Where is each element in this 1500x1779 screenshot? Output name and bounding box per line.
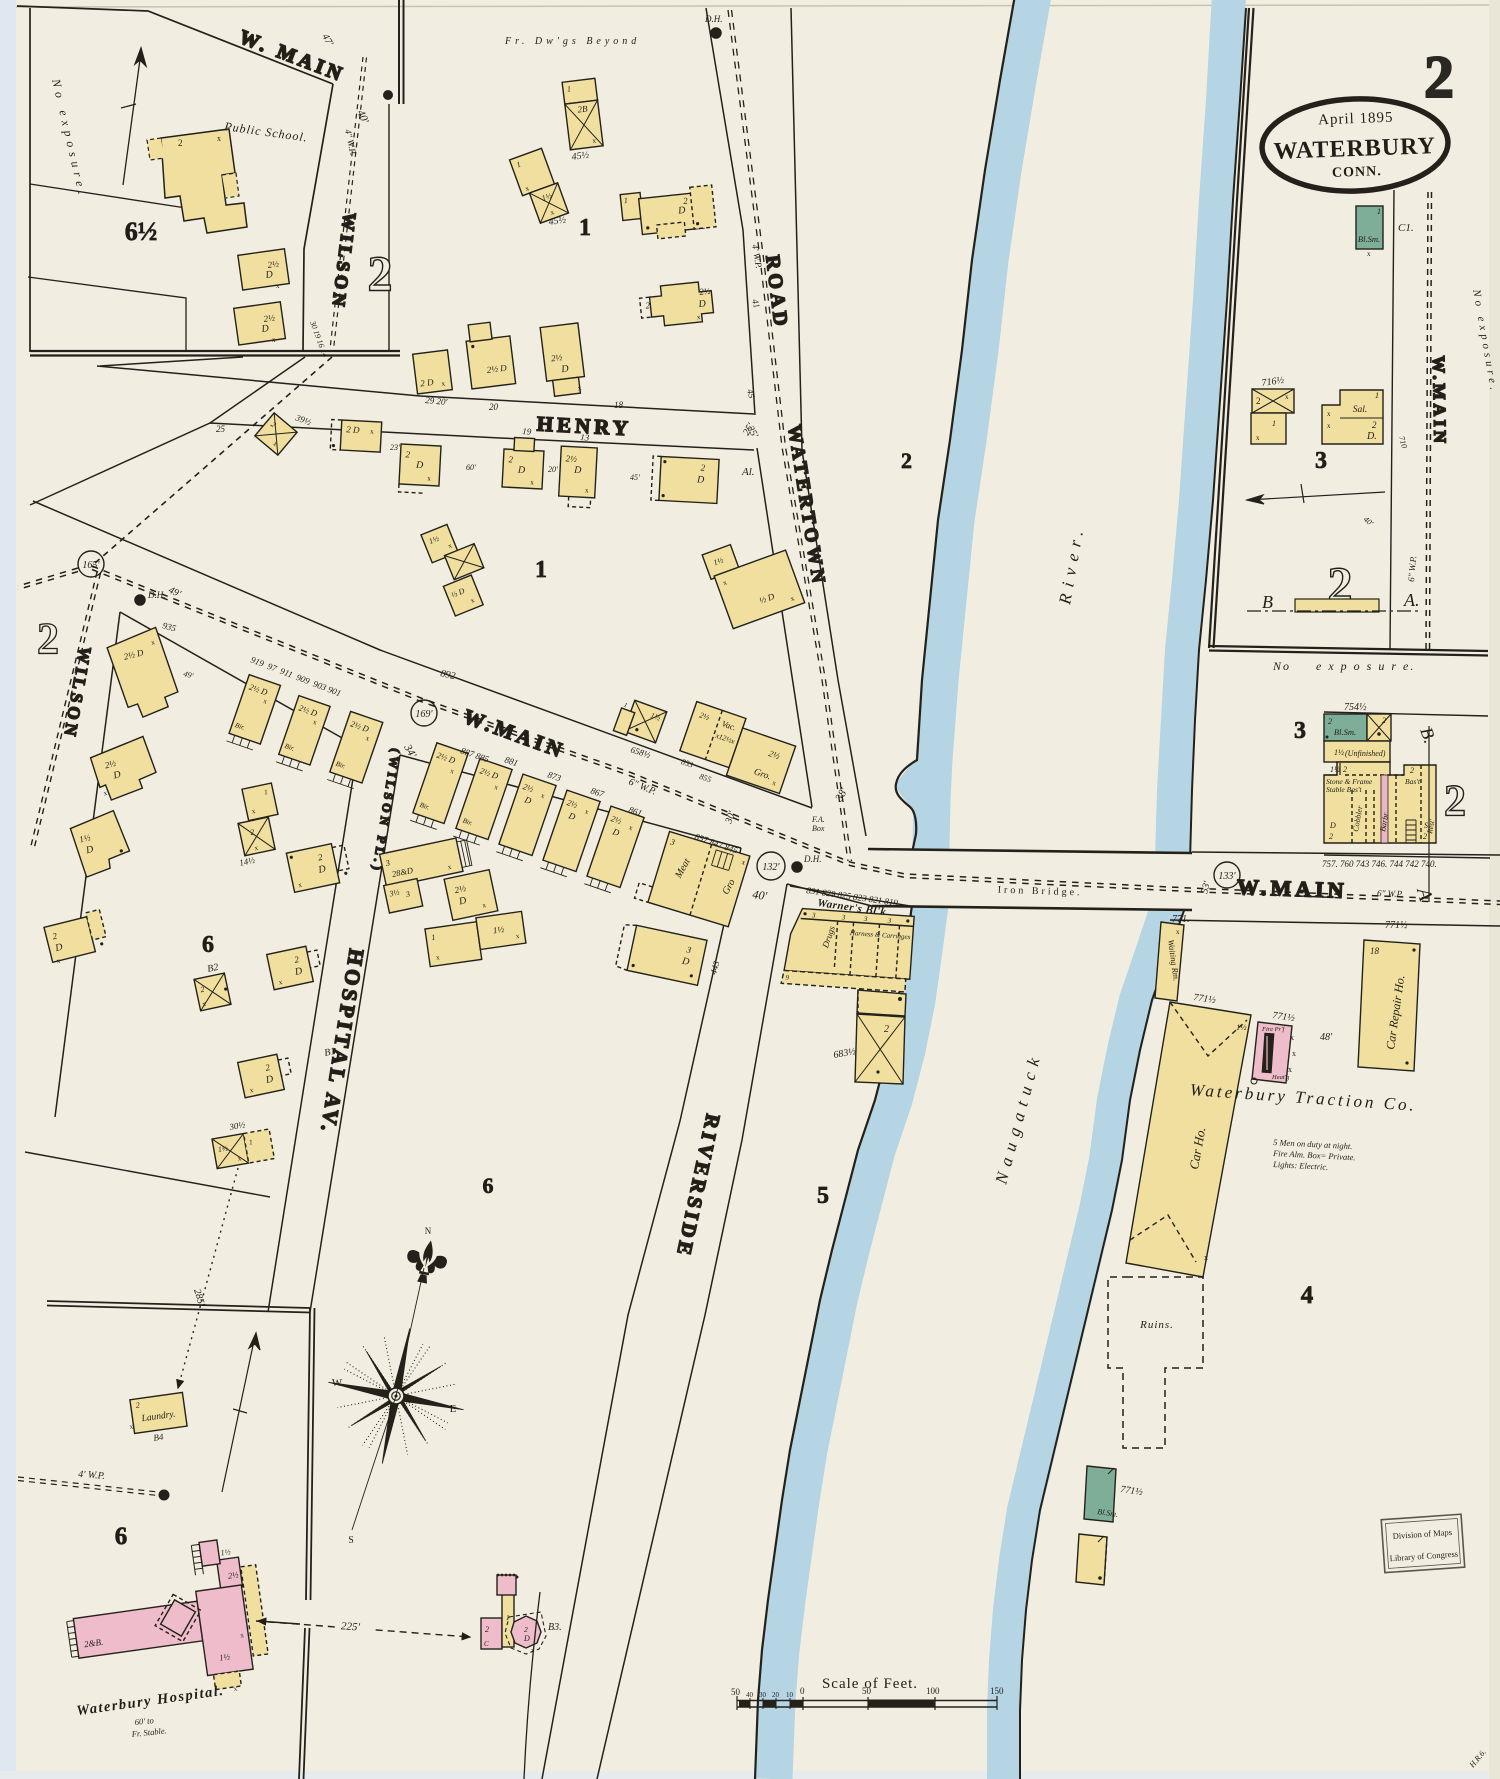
svg-text:2: 2 (1444, 776, 1466, 825)
svg-text:W.MAIN: W.MAIN (1429, 356, 1450, 447)
svg-text:B2: B2 (206, 962, 219, 975)
svg-text:2: 2 (1424, 44, 1454, 110)
svg-text:x: x (1327, 410, 1331, 418)
svg-text:2: 2 (1372, 420, 1377, 430)
svg-text:x: x (1204, 1253, 1208, 1262)
svg-text:2½: 2½ (267, 258, 280, 270)
svg-text:Fire Pr'f: Fire Pr'f (1261, 1026, 1285, 1033)
svg-text:19: 19 (522, 426, 532, 437)
svg-text:6" W.P.: 6" W.P. (1377, 888, 1403, 899)
svg-text:40: 40 (746, 1691, 754, 1699)
svg-text:x: x (1290, 1033, 1294, 1042)
svg-text:2½: 2½ (227, 1569, 240, 1580)
svg-text:4' W.P.: 4' W.P. (78, 1469, 106, 1482)
svg-text:D.H.: D.H. (147, 590, 166, 600)
svg-text:754½: 754½ (1344, 702, 1367, 713)
svg-text:2: 2 (37, 614, 59, 663)
svg-text:Bl.Sm.: Bl.Sm. (1334, 727, 1356, 737)
svg-text:D.H.: D.H. (803, 854, 822, 864)
svg-text:B: B (1262, 592, 1273, 612)
svg-text:Sal.: Sal. (1353, 405, 1368, 415)
svg-text:2B: 2B (577, 103, 589, 114)
svg-text:W.MAIN: W.MAIN (1237, 874, 1348, 903)
svg-text:1: 1 (579, 215, 591, 241)
svg-text:x: x (1292, 1049, 1296, 1058)
svg-text:1½: 1½ (1236, 1022, 1247, 1032)
svg-text:13: 13 (580, 432, 590, 443)
svg-text:2: 2 (1410, 766, 1414, 775)
svg-text:x: x (276, 282, 280, 290)
svg-text:2 D: 2 D (346, 424, 360, 435)
svg-text:D.: D. (1366, 431, 1377, 442)
svg-text:Stable Bas't: Stable Bas't (1326, 785, 1362, 794)
svg-text:2: 2 (1382, 716, 1386, 725)
svg-text:6½: 6½ (125, 217, 158, 246)
svg-text:C: C (484, 1640, 489, 1648)
svg-text:Box: Box (812, 824, 825, 833)
svg-text:2½: 2½ (550, 352, 563, 363)
svg-text:2 D: 2 D (420, 377, 435, 389)
svg-text:2: 2 (1329, 832, 1333, 841)
svg-text:D: D (1329, 821, 1336, 830)
svg-text:2: 2 (1256, 396, 1261, 406)
svg-text:30: 30 (759, 1691, 767, 1699)
svg-text:29 20': 29 20' (425, 395, 449, 407)
svg-text:169': 169' (415, 709, 433, 720)
svg-text:20': 20' (548, 465, 558, 474)
svg-text:April 1895: April 1895 (1318, 110, 1394, 129)
svg-text:x: x (1256, 434, 1260, 442)
svg-text:757. 760 743 746. 744 742 740.: 757. 760 743 746. 744 742 740. (1322, 859, 1437, 869)
svg-text:C1.: C1. (1398, 222, 1414, 234)
svg-text:x: x (272, 336, 276, 344)
svg-text:23': 23' (390, 443, 400, 452)
svg-text:1½: 1½ (1330, 765, 1340, 774)
svg-text:x: x (1367, 250, 1371, 258)
svg-text:20: 20 (772, 1691, 780, 1699)
svg-text:60': 60' (466, 463, 476, 472)
svg-text:Bl.Sm.: Bl.Sm. (1358, 234, 1380, 244)
svg-text:2: 2 (901, 448, 912, 473)
svg-text:1½: 1½ (492, 924, 505, 936)
svg-text:2½: 2½ (699, 286, 711, 297)
svg-text:3: 3 (1294, 718, 1306, 744)
svg-text:132': 132' (762, 862, 780, 873)
svg-text:N: N (425, 1226, 432, 1236)
svg-text:20: 20 (489, 402, 499, 412)
svg-text:18: 18 (1370, 946, 1380, 956)
svg-text:x: x (217, 134, 221, 143)
svg-text:45': 45' (630, 473, 640, 482)
svg-text:50: 50 (731, 1687, 741, 1697)
svg-text:771½: 771½ (1385, 920, 1408, 931)
svg-text:5: 5 (817, 1183, 829, 1209)
svg-text:2½: 2½ (263, 312, 276, 324)
svg-text:1½: 1½ (220, 1547, 231, 1557)
svg-text:D: D (696, 474, 706, 485)
svg-text:No e x p o s u r e.: No e x p o s u r e. (1272, 659, 1415, 673)
svg-text:2: 2 (1343, 765, 1347, 774)
svg-text:2: 2 (368, 245, 393, 301)
svg-text:x: x (1285, 393, 1289, 401)
svg-text:2: 2 (524, 1625, 528, 1634)
svg-text:B4: B4 (153, 1431, 165, 1442)
svg-text:6: 6 (202, 932, 214, 958)
svg-text:48': 48' (1320, 1032, 1333, 1043)
svg-text:2: 2 (1328, 717, 1332, 726)
svg-text:18: 18 (614, 400, 624, 410)
svg-text:1½: 1½ (217, 1144, 228, 1155)
svg-text:4: 4 (1301, 1282, 1314, 1309)
svg-text:D: D (523, 1634, 530, 1643)
svg-text:F.A.: F.A. (811, 815, 825, 824)
svg-text:225': 225' (341, 1620, 361, 1633)
svg-text:Ruins.: Ruins. (1139, 1319, 1174, 1331)
svg-text:B3.: B3. (548, 1622, 562, 1633)
svg-text:D: D (573, 465, 583, 476)
svg-text:W: W (332, 1377, 343, 1389)
svg-text:40': 40' (752, 887, 769, 903)
svg-text:Fr. Dw'gs Beyond: Fr. Dw'gs Beyond (504, 36, 640, 47)
svg-text:1: 1 (1272, 419, 1276, 428)
svg-text:A.: A. (1403, 590, 1420, 610)
svg-text:60' to: 60' to (134, 1715, 154, 1727)
svg-text:1: 1 (1375, 391, 1379, 400)
svg-text:133': 133' (1218, 871, 1236, 882)
svg-text:10: 10 (786, 1691, 794, 1699)
svg-text:x: x (1176, 928, 1180, 936)
svg-text:1½: 1½ (1334, 748, 1344, 757)
svg-text:D.H.: D.H. (704, 14, 723, 24)
svg-text:6: 6 (483, 1173, 494, 1198)
svg-text:Heat'g: Heat'g (1271, 1074, 1290, 1081)
svg-text:100: 100 (926, 1686, 940, 1696)
svg-text:2½: 2½ (565, 453, 577, 464)
svg-text:1½: 1½ (219, 1651, 232, 1662)
svg-text:S: S (348, 1535, 354, 1546)
svg-text:D: D (415, 460, 425, 471)
svg-text:50: 50 (862, 1686, 872, 1696)
svg-text:x: x (1327, 422, 1331, 430)
svg-text:E: E (450, 1403, 457, 1415)
svg-text:2: 2 (485, 1625, 489, 1634)
svg-text:0: 0 (800, 1686, 805, 1696)
svg-text:1: 1 (535, 557, 547, 583)
svg-text:Bas't: Bas't (1405, 777, 1421, 786)
svg-text:Al.: Al. (741, 466, 755, 478)
svg-text:(Unfinished): (Unfinished) (1345, 749, 1386, 758)
svg-text:D: D (517, 465, 527, 476)
svg-text:25: 25 (216, 424, 226, 434)
svg-text:3: 3 (1315, 448, 1327, 474)
svg-text:2: 2 (884, 1024, 889, 1035)
svg-text:6: 6 (115, 1523, 128, 1550)
svg-text:1: 1 (1377, 207, 1381, 216)
svg-text:150: 150 (990, 1686, 1004, 1696)
svg-text:x: x (1288, 1065, 1292, 1074)
svg-text:CONN.: CONN. (1332, 164, 1382, 181)
svg-text:2: 2 (178, 138, 183, 148)
